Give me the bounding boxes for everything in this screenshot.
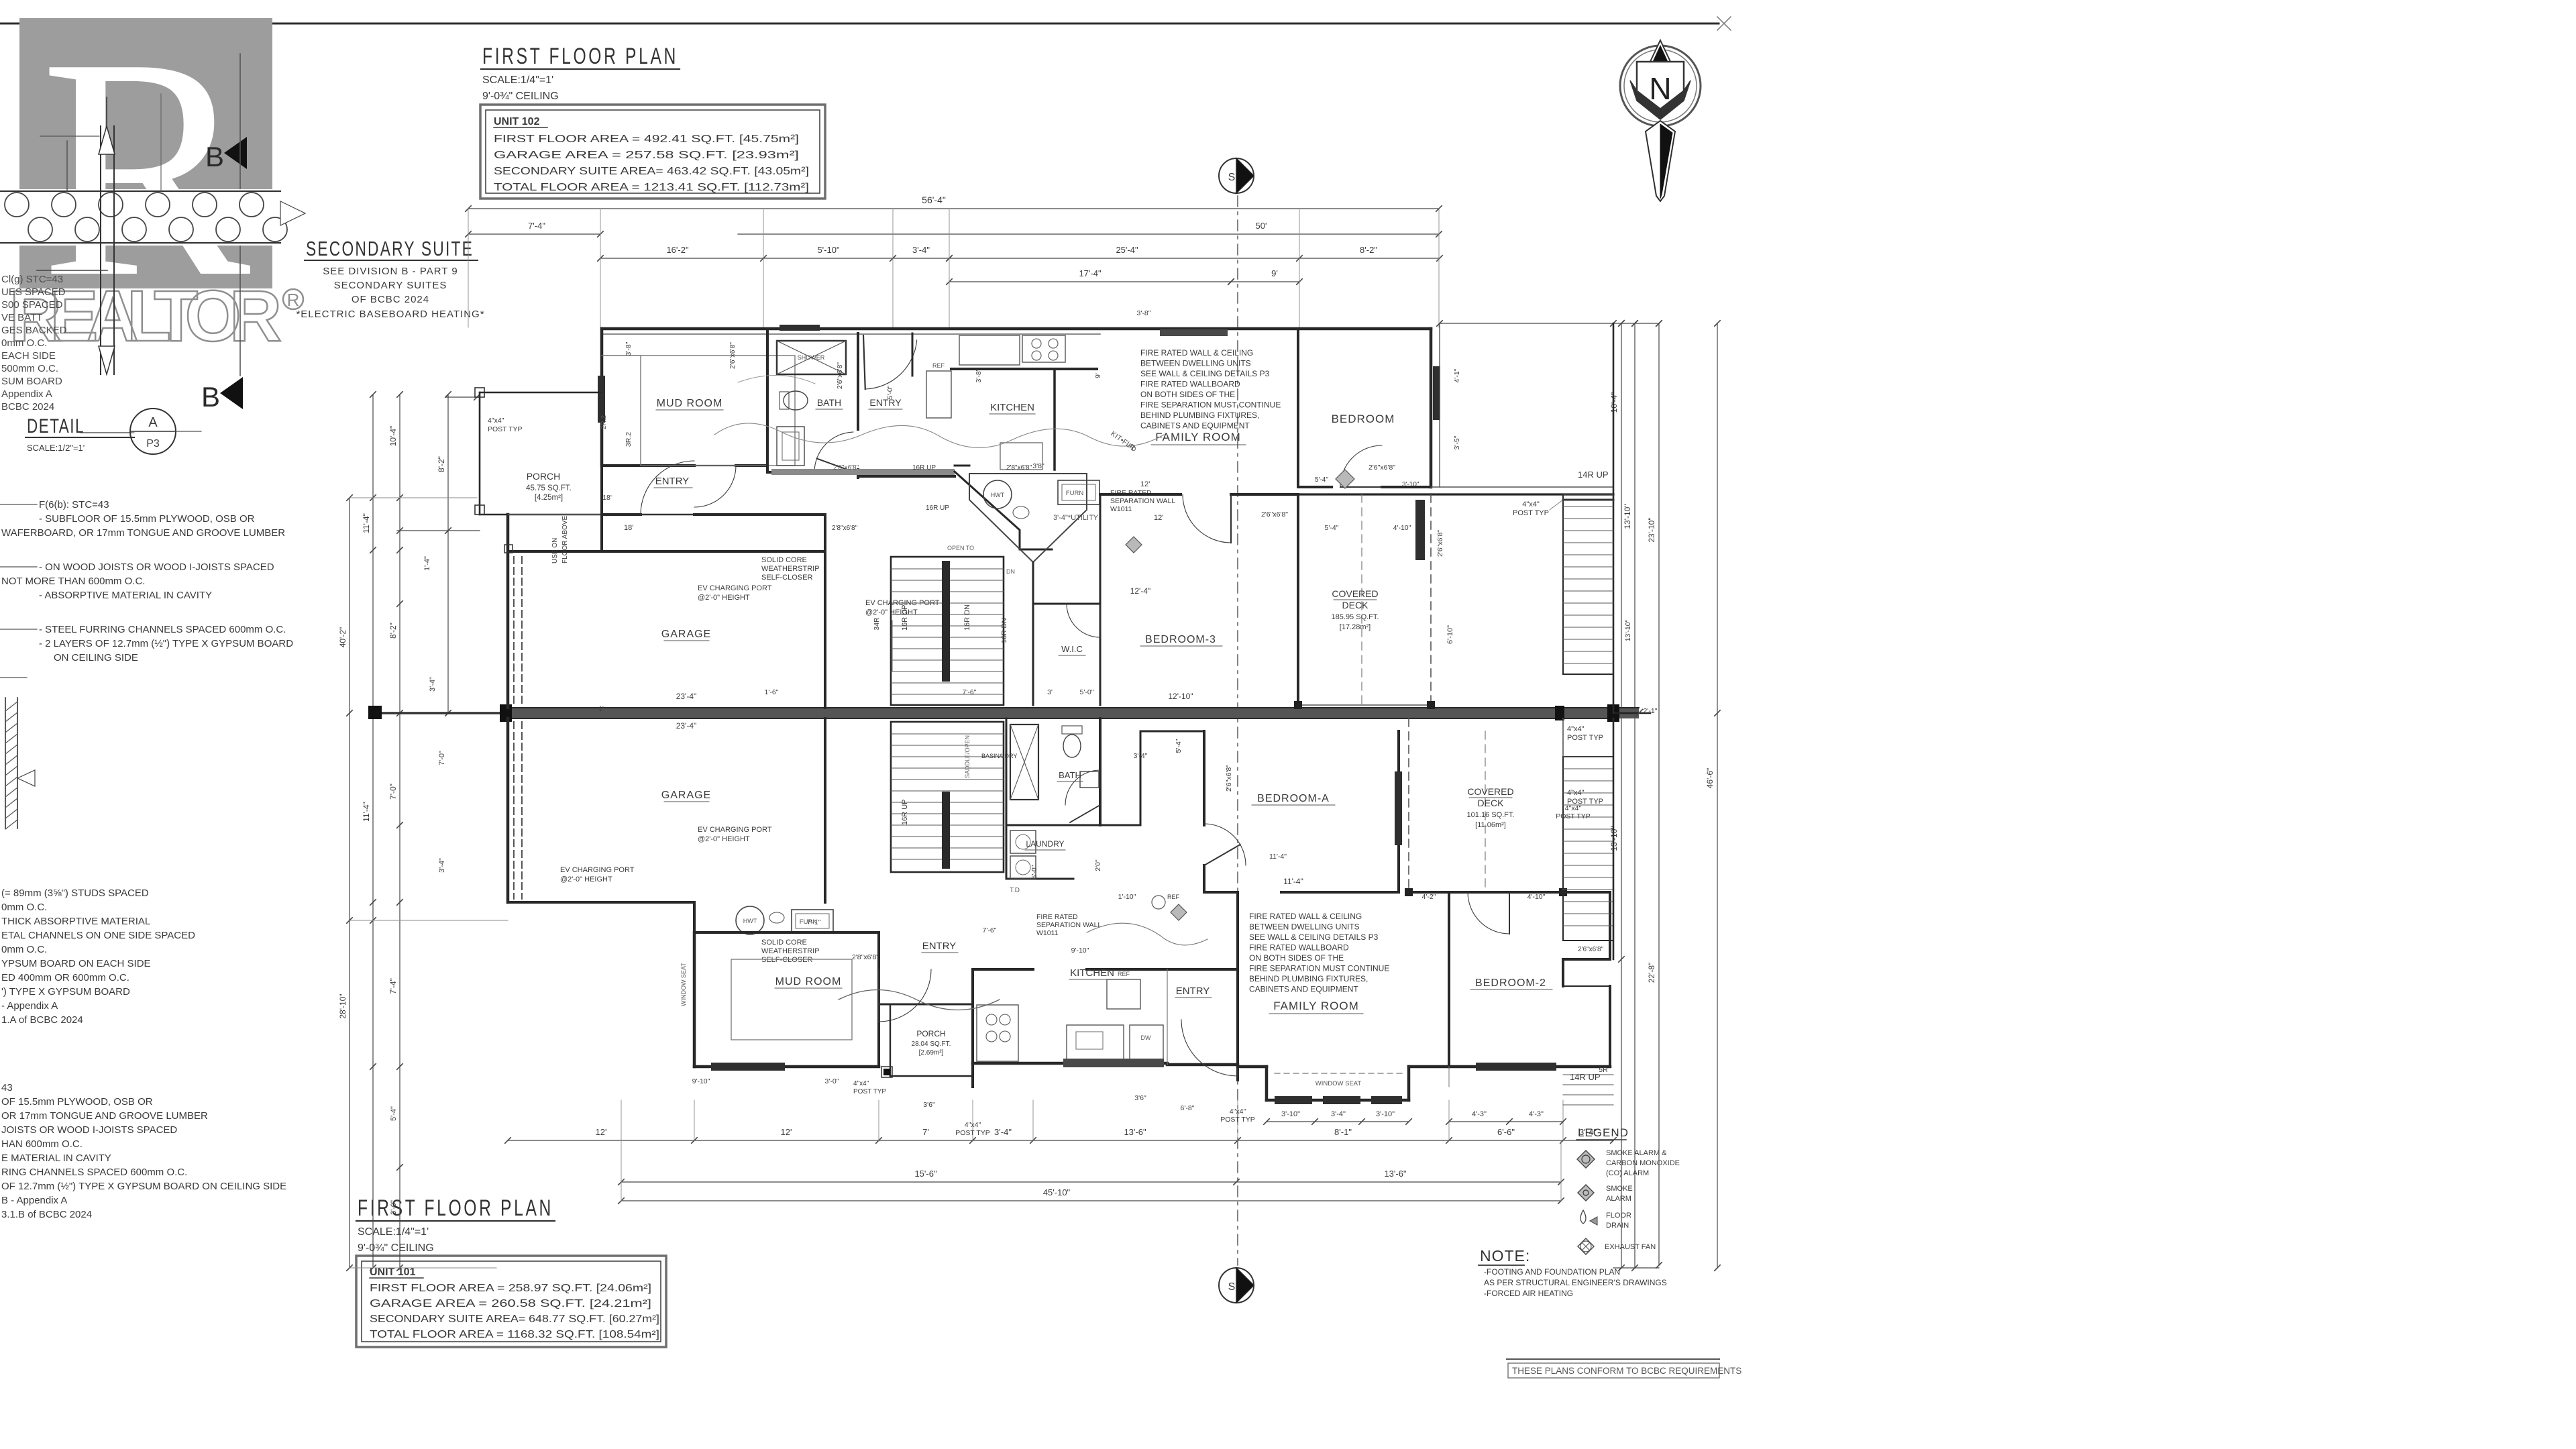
svg-text:1'-6": 1'-6" (765, 688, 779, 696)
svg-text:3'-0": 3'-0" (390, 1200, 398, 1215)
svg-text:2'8"x6'8": 2'8"x6'8" (852, 953, 879, 961)
svg-text:3'-4": 3'-4" (912, 245, 930, 255)
svg-text:[4.25m²]: [4.25m²] (535, 494, 563, 502)
svg-text:WINDOW SEAT: WINDOW SEAT (680, 963, 687, 1006)
svg-text:') TYPE X GYPSUM BOARD: ') TYPE X GYPSUM BOARD (1, 986, 130, 998)
svg-text:3'6": 3'6" (1134, 1094, 1146, 1102)
svg-text:POST TYP: POST TYP (488, 425, 523, 433)
svg-text:3'-10": 3'-10" (1376, 1110, 1395, 1118)
svg-text:SOLID CORE: SOLID CORE (761, 556, 807, 564)
svg-text:ETAL CHANNELS ON ONE SIDE SPAC: ETAL CHANNELS ON ONE SIDE SPACED (1, 930, 195, 941)
svg-text:N: N (1649, 71, 1671, 106)
svg-text:CABINETS AND EQUIPMENT: CABINETS AND EQUIPMENT (1249, 985, 1358, 994)
svg-text:SEPARATION WALL: SEPARATION WALL (1036, 921, 1102, 929)
svg-text:ON BOTH SIDES OF THE: ON BOTH SIDES OF THE (1140, 390, 1235, 399)
svg-text:SCALE:1/4"=1': SCALE:1/4"=1' (358, 1226, 429, 1238)
svg-text:GES BACKED: GES BACKED (1, 325, 67, 336)
svg-text:28'-10": 28'-10" (338, 994, 347, 1018)
svg-text:EXHAUST FAN: EXHAUST FAN (1605, 1243, 1656, 1251)
svg-text:UNIT 101: UNIT 101 (370, 1267, 416, 1278)
svg-text:BEDROOM-A: BEDROOM-A (1257, 793, 1330, 804)
svg-text:FIRE RATED WALL & CEILING: FIRE RATED WALL & CEILING (1249, 912, 1362, 921)
svg-text:11'-4": 11'-4" (362, 802, 371, 822)
svg-text:POST TYP: POST TYP (1556, 812, 1591, 820)
svg-text:2'6"x6'8": 2'6"x6'8" (1578, 946, 1604, 953)
svg-text:SECONDARY SUITE: SECONDARY SUITE (306, 237, 474, 260)
svg-text:WAFERBOARD, OR 17mm TONGUE AND: WAFERBOARD, OR 17mm TONGUE AND GROOVE LU… (1, 527, 285, 539)
svg-text:KITCHEN: KITCHEN (990, 402, 1034, 413)
svg-text:7'-0": 7'-0" (438, 751, 446, 765)
svg-text:WEATHERSTRIP: WEATHERSTRIP (761, 947, 820, 955)
svg-text:12'-4": 12'-4" (1130, 586, 1151, 596)
svg-text:FIRST FLOOR PLAN: FIRST FLOOR PLAN (482, 44, 678, 69)
svg-text:SELF-CLOSER: SELF-CLOSER (761, 956, 812, 964)
svg-text:MUD ROOM: MUD ROOM (775, 976, 842, 987)
svg-text:UES SPACED: UES SPACED (1, 286, 66, 298)
svg-text:GARAGE: GARAGE (661, 790, 711, 801)
svg-text:DECK: DECK (1342, 600, 1369, 610)
svg-text:POST TYP: POST TYP (1567, 734, 1603, 742)
svg-text:3'-0": 3'-0" (825, 1077, 839, 1085)
svg-text:1': 1' (598, 705, 604, 713)
svg-text:NOT MORE THAN 600mm O.C.: NOT MORE THAN 600mm O.C. (1, 576, 145, 587)
svg-text:5'-0": 5'-0" (1030, 865, 1038, 879)
svg-text:ENTRY: ENTRY (922, 941, 957, 952)
svg-text:45'-10": 45'-10" (1043, 1187, 1071, 1197)
svg-text:SEPARATION WALL: SEPARATION WALL (1110, 497, 1175, 505)
svg-text:50': 50' (1256, 221, 1267, 231)
svg-text:3'-4": 3'-4" (1331, 1110, 1346, 1118)
svg-text:RING CHANNELS SPACED 600mm O.C: RING CHANNELS SPACED 600mm O.C. (1, 1167, 187, 1178)
svg-text:3'-8": 3'-8" (625, 341, 633, 356)
svg-text:SECONDARY SUITES: SECONDARY SUITES (334, 280, 447, 291)
svg-text:2'8"x6'8": 2'8"x6'8" (832, 525, 858, 532)
svg-text:5'-0": 5'-0" (1080, 688, 1094, 696)
svg-text:3'-4": 3'-4" (429, 677, 437, 692)
svg-text:2'6"x6'8": 2'6"x6'8" (1225, 765, 1233, 792)
svg-text:E MATERIAL IN CAVITY: E MATERIAL IN CAVITY (1, 1152, 111, 1164)
svg-text:- SUBFLOOR OF 15.5mm PLYWOOD,: - SUBFLOOR OF 15.5mm PLYWOOD, OSB OR (39, 513, 255, 525)
svg-text:46'-6": 46'-6" (1705, 768, 1715, 789)
svg-text:4"x4": 4"x4" (488, 417, 504, 425)
svg-text:FURN: FURN (1066, 490, 1084, 497)
svg-text:BASIN/LDRY: BASIN/LDRY (981, 753, 1017, 759)
svg-text:OPEN TO: OPEN TO (947, 545, 974, 551)
svg-text:8'-1": 8'-1" (1334, 1127, 1352, 1137)
svg-text:ON BOTH SIDES OF THE: ON BOTH SIDES OF THE (1249, 953, 1344, 963)
svg-text:UNIT 102: UNIT 102 (494, 116, 540, 127)
svg-text:WINDOW SEAT: WINDOW SEAT (1316, 1080, 1362, 1087)
svg-text:*ELECTRIC BASEBOARD HEATING*: *ELECTRIC BASEBOARD HEATING* (296, 309, 484, 320)
svg-text:1.A of BCBC 2024: 1.A of BCBC 2024 (1, 1014, 83, 1026)
svg-text:REF: REF (1167, 894, 1180, 900)
svg-text:2'8"x6'8": 2'8"x6'8" (833, 464, 859, 472)
svg-text:8'-2": 8'-2" (1360, 245, 1377, 255)
svg-text:VE BATT: VE BATT (1, 312, 42, 323)
svg-text:FIRE SEPARATION MUST CONTINUE: FIRE SEPARATION MUST CONTINUE (1140, 400, 1281, 410)
svg-text:BEDROOM-2: BEDROOM-2 (1475, 977, 1546, 989)
svg-text:WEATHERSTRIP: WEATHERSTRIP (761, 565, 820, 573)
svg-text:REF: REF (1118, 971, 1130, 977)
svg-text:W1011: W1011 (1110, 505, 1132, 513)
svg-text:- ABSORPTIVE MATERIAL IN CAVI: - ABSORPTIVE MATERIAL IN CAVITY (39, 590, 212, 601)
svg-text:SUM BOARD: SUM BOARD (1, 376, 62, 387)
svg-text:HWT: HWT (743, 918, 757, 924)
svg-text:16R UP: 16R UP (926, 504, 949, 512)
svg-text:0mm O.C.: 0mm O.C. (1, 337, 47, 349)
svg-text:BEHIND PLUMBING FIXTURES,: BEHIND PLUMBING FIXTURES, (1140, 411, 1259, 420)
svg-text:25'-4": 25'-4" (1116, 245, 1138, 255)
svg-text:3'-4"*UTILITY: 3'-4"*UTILITY (1053, 514, 1099, 522)
svg-text:1'-4": 1'-4" (423, 556, 431, 571)
svg-text:OF BCBC 2024: OF BCBC 2024 (352, 294, 429, 305)
svg-text:GARAGE: GARAGE (661, 629, 711, 640)
svg-text:EV CHARGING PORT: EV CHARGING PORT (698, 826, 772, 834)
svg-text:6'-8": 6'-8" (1181, 1104, 1195, 1112)
svg-text:EACH SIDE: EACH SIDE (1, 350, 56, 362)
svg-text:[17.28m²]: [17.28m²] (1340, 623, 1371, 631)
svg-text:16R DN: 16R DN (1000, 618, 1008, 643)
svg-text:4'-1": 4'-1" (1453, 368, 1461, 382)
svg-text:F(6(b): STC=43: F(6(b): STC=43 (39, 499, 109, 511)
svg-text:17'-4": 17'-4" (1079, 268, 1102, 278)
svg-text:9'-0¾" CEILING: 9'-0¾" CEILING (482, 91, 559, 102)
svg-text:7': 7' (922, 1127, 929, 1137)
svg-text:[2.69m²]: [2.69m²] (919, 1049, 944, 1057)
svg-text:POST TYP: POST TYP (1513, 509, 1549, 517)
svg-text:22'-8": 22'-8" (1647, 963, 1656, 983)
svg-text:10'-4": 10'-4" (388, 426, 398, 447)
svg-text:CARBON MONOXIDE: CARBON MONOXIDE (1606, 1159, 1680, 1167)
svg-text:BATH: BATH (817, 397, 841, 408)
svg-text:- ON WOOD JOISTS OR WOOD I-JO: - ON WOOD JOISTS OR WOOD I-JOISTS SPACED (39, 561, 274, 573)
svg-text:3'-5": 3'-5" (1453, 435, 1461, 449)
svg-text:MUD ROOM: MUD ROOM (657, 398, 723, 409)
svg-text:SMOKE: SMOKE (1606, 1185, 1633, 1193)
svg-text:9'-10": 9'-10" (692, 1077, 710, 1085)
svg-text:3'-4": 3'-4" (1134, 752, 1148, 760)
svg-text:OF 15.5mm PLYWOOD, OSB OR: OF 15.5mm PLYWOOD, OSB OR (1, 1096, 153, 1108)
svg-text:TOTAL FLOOR AREA = 1168.32 S: TOTAL FLOOR AREA = 1168.32 SQ.FT. [108.5… (370, 1329, 659, 1340)
svg-text:23'-4": 23'-4" (676, 692, 697, 701)
svg-text:8'-2": 8'-2" (388, 623, 398, 639)
svg-text:DECK: DECK (1478, 798, 1505, 808)
svg-text:P3: P3 (146, 438, 160, 449)
svg-text:4"x4": 4"x4" (853, 1080, 869, 1087)
svg-text:7'-4": 7'-4" (528, 221, 545, 231)
svg-text:12': 12' (596, 1127, 607, 1137)
svg-text:POST TYP: POST TYP (1220, 1116, 1255, 1124)
svg-text:2'6"x6'8": 2'6"x6'8" (1436, 530, 1444, 557)
svg-text:5'-10": 5'-10" (817, 245, 840, 255)
svg-text:NOTE:: NOTE: (1480, 1247, 1530, 1265)
svg-text:16R DN: 16R DN (963, 604, 971, 631)
svg-text:4"x4": 4"x4" (965, 1121, 981, 1129)
svg-text:FLOOR: FLOOR (1606, 1212, 1631, 1220)
svg-text:2'6"x6'8": 2'6"x6'8" (729, 342, 737, 369)
svg-text:12': 12' (781, 1127, 792, 1137)
svg-text:6'-6": 6'-6" (1497, 1127, 1515, 1137)
svg-text:@2'-0" HEIGHT: @2'-0" HEIGHT (560, 875, 612, 883)
svg-text:COVERED: COVERED (1332, 588, 1378, 599)
svg-text:16'-2": 16'-2" (666, 245, 689, 255)
svg-text:2'6"x6'8": 2'6"x6'8" (1261, 511, 1288, 519)
svg-text:SMOKE ALARM &: SMOKE ALARM & (1606, 1149, 1667, 1157)
svg-text:REF: REF (932, 362, 945, 369)
svg-text:56'-4": 56'-4" (922, 195, 946, 205)
svg-text:2'6"x6'8": 2'6"x6'8" (836, 362, 844, 389)
svg-text:S00 SPACED: S00 SPACED (1, 299, 63, 311)
svg-text:40'-2": 40'-2" (338, 627, 347, 648)
svg-text:EV CHARGING PORT: EV CHARGING PORT (698, 584, 772, 592)
svg-text:16R UP: 16R UP (912, 464, 936, 472)
svg-text:BCBC 2024: BCBC 2024 (1, 401, 54, 413)
svg-text:-FORCED AIR HEATING: -FORCED AIR HEATING (1484, 1289, 1573, 1298)
svg-text:B - Appendix A: B - Appendix A (1, 1195, 67, 1206)
svg-text:4'-10": 4'-10" (1393, 524, 1411, 532)
svg-text:4'-3": 4'-3" (1529, 1110, 1544, 1118)
svg-text:4"x4": 4"x4" (1567, 789, 1585, 797)
svg-text:THESE PLANS CONFORM TO BCBC RE: THESE PLANS CONFORM TO BCBC REQUIREMENTS (1512, 1366, 1741, 1376)
svg-text:3'8": 3'8" (1032, 462, 1044, 470)
svg-text:4"x4": 4"x4" (1567, 725, 1585, 733)
svg-text:3R.2: 3R.2 (625, 432, 633, 447)
svg-text:(CO) ALARM: (CO) ALARM (1606, 1169, 1649, 1177)
svg-text:THICK ABSORPTIVE MATERIAL: THICK ABSORPTIVE MATERIAL (1, 916, 150, 927)
svg-text:SADDLE/OPEN: SADDLE/OPEN (964, 735, 971, 778)
svg-text:TOTAL FLOOR AREA = 1213.41 S: TOTAL FLOOR AREA = 1213.41 SQ.FT. [112.7… (494, 182, 809, 193)
svg-text:FIRE RATED WALLBOARD: FIRE RATED WALLBOARD (1249, 943, 1349, 953)
svg-text:SOLID CORE: SOLID CORE (761, 938, 807, 947)
svg-text:3'-10": 3'-10" (1281, 1110, 1300, 1118)
svg-text:BEDROOM: BEDROOM (1332, 413, 1395, 425)
svg-text:3'-8": 3'-8" (1137, 309, 1151, 317)
svg-text:7'-6": 7'-6" (983, 926, 997, 934)
svg-text:101.16 SQ.FT.: 101.16 SQ.FT. (1467, 811, 1515, 819)
svg-text:DN: DN (1006, 568, 1015, 575)
svg-text:6'-10": 6'-10" (1446, 625, 1454, 644)
svg-text:R: R (287, 290, 300, 310)
svg-text:PORCH: PORCH (527, 471, 561, 482)
svg-text:3'-4": 3'-4" (994, 1127, 1012, 1137)
svg-text:43: 43 (1, 1082, 13, 1093)
svg-text:JOISTS OR WOOD I-JOISTS SPACED: JOISTS OR WOOD I-JOISTS SPACED (1, 1124, 177, 1136)
svg-text:16R UP: 16R UP (901, 604, 909, 631)
svg-text:12': 12' (1154, 514, 1163, 522)
svg-text:- Appendix A: - Appendix A (1, 1000, 58, 1012)
svg-text:1'-10": 1'-10" (1118, 893, 1136, 901)
svg-text:0mm O.C.: 0mm O.C. (1, 902, 47, 913)
svg-text:9'-10": 9'-10" (1071, 947, 1089, 955)
svg-text:FIRE RATED WALL & CEILING: FIRE RATED WALL & CEILING (1140, 348, 1253, 358)
svg-text:ALARM: ALARM (1606, 1195, 1631, 1203)
svg-text:16R UP: 16R UP (901, 799, 909, 825)
svg-text:KITCHEN: KITCHEN (1070, 967, 1114, 979)
svg-text:7'-6": 7'-6" (963, 688, 977, 696)
svg-text:11'-4": 11'-4" (1283, 877, 1303, 886)
svg-text:T.D: T.D (1010, 887, 1020, 894)
svg-text:14R UP: 14R UP (1578, 470, 1609, 480)
svg-text:3'-10": 3'-10" (1402, 481, 1419, 488)
svg-text:SELF-CLOSER: SELF-CLOSER (761, 574, 812, 582)
svg-text:15'-6": 15'-6" (914, 1169, 937, 1179)
svg-text:B: B (201, 381, 220, 413)
svg-text:@2'-0" HEIGHT: @2'-0" HEIGHT (698, 835, 750, 843)
svg-text:SHOWER: SHOWER (798, 354, 825, 361)
svg-text:13'-6": 13'-6" (1124, 1127, 1146, 1137)
svg-text:ENTRY: ENTRY (1176, 985, 1210, 997)
svg-text:USE ON: USE ON (551, 538, 559, 563)
svg-text:SEE WALL & CEILING DETAILS P3: SEE WALL & CEILING DETAILS P3 (1140, 369, 1270, 378)
svg-text:45.75 SQ.FT.: 45.75 SQ.FT. (526, 484, 572, 492)
svg-text:11'-4": 11'-4" (362, 513, 371, 533)
svg-text:28.04 SQ.FT.: 28.04 SQ.FT. (912, 1040, 951, 1048)
svg-text:FLOOR ABOVE: FLOOR ABOVE (561, 516, 569, 563)
svg-text:5'-0": 5'-0" (886, 385, 894, 399)
svg-text:SEE DIVISION B - PART 9: SEE DIVISION B - PART 9 (323, 266, 458, 277)
svg-text:(= 89mm (3⅝") STUDS SPACED: (= 89mm (3⅝") STUDS SPACED (1, 888, 149, 899)
svg-text:HAN 600mm O.C.: HAN 600mm O.C. (1, 1138, 83, 1150)
svg-text:GARAGE AREA = 257.58: GARAGE AREA = 257.58 SQ.FT. [23.93m²] (494, 150, 799, 161)
svg-text:FIRST FLOOR AREA = 492.41 SQ: FIRST FLOOR AREA = 492.41 SQ.FT. [45.75m… (494, 133, 799, 145)
svg-text:OR 17mm TONGUE AND GROOVE LUMB: OR 17mm TONGUE AND GROOVE LUMBER (1, 1110, 208, 1122)
svg-text:LAUNDRY: LAUNDRY (1026, 839, 1064, 849)
svg-text:POST TYP: POST TYP (853, 1088, 886, 1095)
svg-text:DETAIL: DETAIL (27, 415, 85, 437)
svg-text:SCALE:1/4"=1': SCALE:1/4"=1' (482, 74, 553, 86)
svg-text:4'-10": 4'-10" (1527, 893, 1546, 901)
svg-text:SCALE:1/2"=1': SCALE:1/2"=1' (27, 443, 85, 453)
svg-text:2'6"x6'8": 2'6"x6'8" (1368, 464, 1395, 472)
svg-text:EV CHARGING PORT: EV CHARGING PORT (560, 866, 635, 874)
svg-text:4"x4": 4"x4" (1565, 804, 1582, 812)
svg-text:2'0": 2'0" (1094, 859, 1102, 871)
svg-text:- STEEL FURRING CHANNELS SPAC: - STEEL FURRING CHANNELS SPACED 600mm O.… (39, 624, 286, 635)
svg-text:B: B (205, 141, 224, 172)
svg-text:CABINETS AND EQUIPMENT: CABINETS AND EQUIPMENT (1140, 421, 1250, 431)
svg-text:@2'-0" HEIGHT: @2'-0" HEIGHT (698, 594, 750, 602)
svg-text:POST TYP: POST TYP (955, 1129, 990, 1137)
svg-text:4"x4": 4"x4" (1522, 500, 1540, 508)
svg-text:5'-4": 5'-4" (1175, 739, 1183, 753)
svg-text:3.1.B of BCBC 2024: 3.1.B of BCBC 2024 (1, 1209, 92, 1220)
svg-text:W.I.C: W.I.C (1061, 644, 1083, 654)
svg-text:3'6": 3'6" (923, 1101, 935, 1109)
svg-text:AS PER STRUCTURAL ENGINEER'S D: AS PER STRUCTURAL ENGINEER'S DRAWINGS (1484, 1278, 1667, 1287)
svg-text:ENTRY: ENTRY (655, 476, 690, 487)
svg-text:11'-4": 11'-4" (1269, 853, 1287, 861)
svg-text:COVERED: COVERED (1467, 786, 1513, 797)
svg-text:12': 12' (1140, 480, 1150, 488)
svg-text:4'-2": 4'-2" (1422, 893, 1436, 901)
svg-text:[11.06m²]: [11.06m²] (1475, 821, 1506, 829)
svg-text:ED 400mm OR 600mm O.C.: ED 400mm OR 600mm O.C. (1, 972, 129, 983)
svg-text:Cl(g) STC=43: Cl(g) STC=43 (1, 274, 63, 285)
svg-text:9': 9' (1094, 373, 1102, 378)
svg-text:S: S (1228, 1281, 1236, 1293)
svg-text:12'-10": 12'-10" (1168, 692, 1193, 701)
svg-text:2'-1": 2'-1" (1644, 707, 1658, 715)
svg-text:-FOOTING AND FOUNDATION PLAN: -FOOTING AND FOUNDATION PLAN (1484, 1267, 1620, 1277)
svg-text:3'-8": 3'-8" (975, 368, 983, 382)
svg-text:A: A (148, 415, 158, 430)
svg-text:3'-4": 3'-4" (1579, 1127, 1597, 1137)
svg-text:5'-4": 5'-4" (1325, 524, 1339, 532)
svg-text:SECONDARY SUITE AREA= 648.77: SECONDARY SUITE AREA= 648.77 SQ.FT. [60.… (370, 1313, 659, 1325)
svg-text:500mm O.C.: 500mm O.C. (1, 363, 58, 374)
svg-text:SECONDARY SUITE AREA= 463.42: SECONDARY SUITE AREA= 463.42 SQ.FT. [43.… (494, 166, 809, 177)
svg-text:FIRE RATED: FIRE RATED (1036, 913, 1078, 921)
svg-text:BATH: BATH (1059, 770, 1081, 780)
svg-text:34R: 34R (873, 617, 881, 631)
svg-text:7'-0": 7'-0" (388, 784, 398, 800)
svg-text:FIRE RATED WALLBOARD: FIRE RATED WALLBOARD (1140, 380, 1240, 389)
svg-text:5'-4": 5'-4" (1315, 476, 1328, 484)
svg-text:0mm O.C.: 0mm O.C. (1, 944, 47, 955)
svg-text:- 2 LAYERS OF 12.7mm (½") TYP: - 2 LAYERS OF 12.7mm (½") TYPE X GYPSUM … (39, 638, 293, 649)
svg-text:7'-4": 7'-4" (388, 978, 398, 994)
svg-text:HWT: HWT (991, 492, 1005, 498)
svg-text:4'-3": 4'-3" (1472, 1110, 1487, 1118)
svg-text:5'-4": 5'-4" (390, 1106, 398, 1121)
svg-text:Appendix A: Appendix A (1, 388, 52, 400)
svg-text:DW: DW (1141, 1034, 1151, 1041)
svg-text:PORCH: PORCH (916, 1029, 945, 1038)
svg-text:4"x4": 4"x4" (1230, 1108, 1246, 1116)
svg-text:18': 18' (602, 494, 612, 502)
svg-text:FAMILY ROOM: FAMILY ROOM (1273, 1000, 1359, 1012)
svg-text:7'-1": 7'-1" (807, 918, 821, 926)
svg-text:5R: 5R (1599, 1066, 1608, 1074)
svg-text:YPSUM BOARD ON EACH SIDE: YPSUM BOARD ON EACH SIDE (1, 958, 151, 969)
svg-text:ON CEILING SIDE: ON CEILING SIDE (54, 652, 138, 663)
svg-text:BETWEEN DWELLING UNITS: BETWEEN DWELLING UNITS (1249, 922, 1360, 932)
svg-text:FIRST FLOOR AREA = 258.97 SQ: FIRST FLOOR AREA = 258.97 SQ.FT. [24.06m… (370, 1283, 651, 1294)
svg-text:SEE WALL & CEILING DETAILS P3: SEE WALL & CEILING DETAILS P3 (1249, 932, 1379, 942)
svg-text:2R.2: 2R.2 (600, 415, 608, 429)
svg-text:13'-10": 13'-10" (1623, 504, 1632, 529)
svg-text:14R UP: 14R UP (1570, 1072, 1601, 1082)
svg-text:GARAGE AREA = 260.58: GARAGE AREA = 260.58 SQ.FT. [24.21m²] (370, 1298, 651, 1309)
svg-text:3': 3' (1047, 688, 1053, 696)
svg-text:FIRE SEPARATION MUST CONTINUE: FIRE SEPARATION MUST CONTINUE (1249, 964, 1389, 973)
svg-text:9': 9' (1271, 268, 1278, 278)
svg-text:13'-6": 13'-6" (1384, 1169, 1407, 1179)
svg-text:OF 12.7mm (½") TYPE X GYPSUM B: OF 12.7mm (½") TYPE X GYPSUM BOARD ON CE… (1, 1181, 286, 1192)
svg-text:BEDROOM-3: BEDROOM-3 (1145, 634, 1216, 645)
svg-text:185.95 SQ.FT.: 185.95 SQ.FT. (1332, 613, 1379, 621)
svg-text:3'-4": 3'-4" (438, 858, 446, 873)
svg-text:FIRST FLOOR PLAN: FIRST FLOOR PLAN (358, 1195, 553, 1221)
svg-text:BETWEEN DWELLING UNITS: BETWEEN DWELLING UNITS (1140, 359, 1251, 368)
svg-text:23'-4": 23'-4" (676, 721, 697, 731)
svg-text:W1011: W1011 (1036, 929, 1059, 937)
svg-text:2'8"x6'8": 2'8"x6'8" (1006, 464, 1032, 472)
svg-text:13'-10": 13'-10" (1624, 619, 1632, 641)
svg-text:DRAIN: DRAIN (1606, 1222, 1629, 1230)
svg-text:8'-2": 8'-2" (437, 456, 446, 472)
svg-text:9'-0¾" CEILING: 9'-0¾" CEILING (358, 1242, 434, 1254)
svg-text:23'-10": 23'-10" (1647, 517, 1656, 542)
svg-text:BEHIND PLUMBING FIXTURES,: BEHIND PLUMBING FIXTURES, (1249, 974, 1368, 983)
svg-text:S: S (1228, 172, 1236, 183)
svg-text:18': 18' (624, 524, 633, 532)
svg-text:FAMILY ROOM: FAMILY ROOM (1155, 431, 1241, 443)
